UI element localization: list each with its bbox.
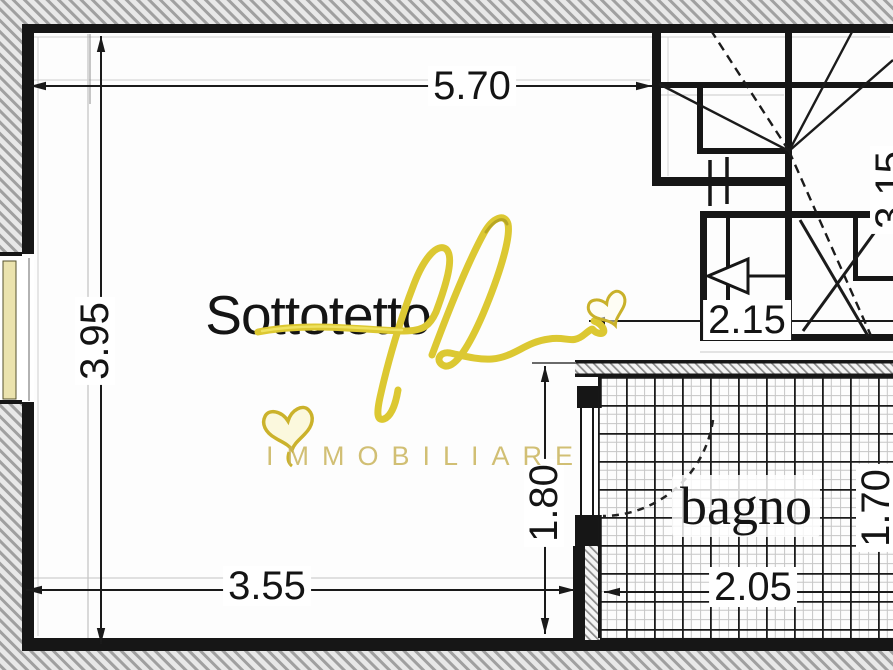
room-label-bagno: bagno [672,475,820,537]
dimension-left-height: 3.95 [75,297,115,385]
dimension-stair-width: 2.15 [703,300,791,340]
stair-direction-arrow [708,259,785,293]
floorplan-canvas: Sottotetto bagno 5.70 3.95 2.15 1.80 3.5… [0,0,893,670]
dimension-bath-width: 2.05 [709,567,797,607]
room-label-sottotetto: Sottotetto [205,283,430,347]
dimension-bottom-width: 3.55 [223,566,311,606]
dimension-right-upper-height: 3.15 [870,146,893,234]
dimension-bath-right-height: 1.70 [856,464,893,552]
window-symbol [0,252,34,404]
dimension-top-width: 5.70 [428,66,516,106]
watermark-brand-text: IMMOBILIARE [266,441,586,472]
dimension-bath-inner-height: 1.80 [524,459,564,547]
